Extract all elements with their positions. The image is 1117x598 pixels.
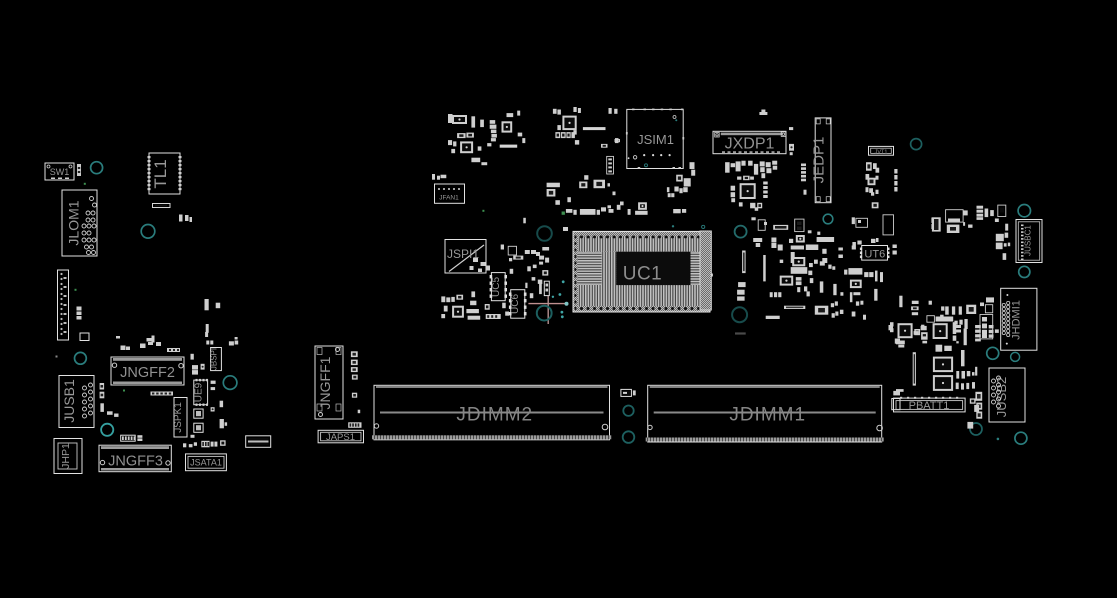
svg-text:JAPS1: JAPS1 — [326, 432, 355, 443]
svg-text:JEDP1: JEDP1 — [811, 137, 828, 184]
svg-text:JNGFF3: JNGFF3 — [108, 454, 163, 470]
svg-text:UC6: UC6 — [510, 294, 521, 314]
svg-text:JBSPI: JBSPI — [210, 348, 219, 370]
svg-text:JSIM1: JSIM1 — [637, 132, 674, 147]
svg-text:JDIMM2: JDIMM2 — [456, 404, 533, 425]
svg-text:JSPK1: JSPK1 — [173, 402, 184, 433]
svg-text:JFAN1: JFAN1 — [439, 195, 459, 202]
svg-text:UC1: UC1 — [623, 264, 663, 285]
svg-text:JHP1: JHP1 — [60, 443, 72, 469]
svg-text:JDIMM1: JDIMM1 — [729, 404, 806, 425]
svg-text:JUSB2: JUSB2 — [994, 377, 1009, 417]
svg-text:JLOM1: JLOM1 — [66, 200, 82, 245]
svg-text:PBATT1: PBATT1 — [909, 400, 950, 412]
svg-text:UT6: UT6 — [864, 249, 885, 261]
svg-text:JUSB1: JUSB1 — [61, 379, 77, 423]
svg-text:UC5: UC5 — [491, 277, 502, 297]
svg-text:JSATA1: JSATA1 — [190, 458, 222, 468]
svg-text:TL1: TL1 — [151, 159, 170, 188]
svg-text:SW1: SW1 — [50, 167, 70, 177]
svg-text:JXDP1: JXDP1 — [725, 136, 775, 153]
svg-text:JNGFF1: JNGFF1 — [317, 356, 333, 409]
svg-text:JUSBC1: JUSBC1 — [1024, 225, 1033, 256]
svg-text:UE9: UE9 — [194, 382, 205, 402]
svg-text:JHDMI1: JHDMI1 — [1011, 300, 1023, 340]
svg-text:JNGFF2: JNGFF2 — [120, 365, 175, 381]
svg-text:JVT1: JVT1 — [875, 150, 888, 156]
